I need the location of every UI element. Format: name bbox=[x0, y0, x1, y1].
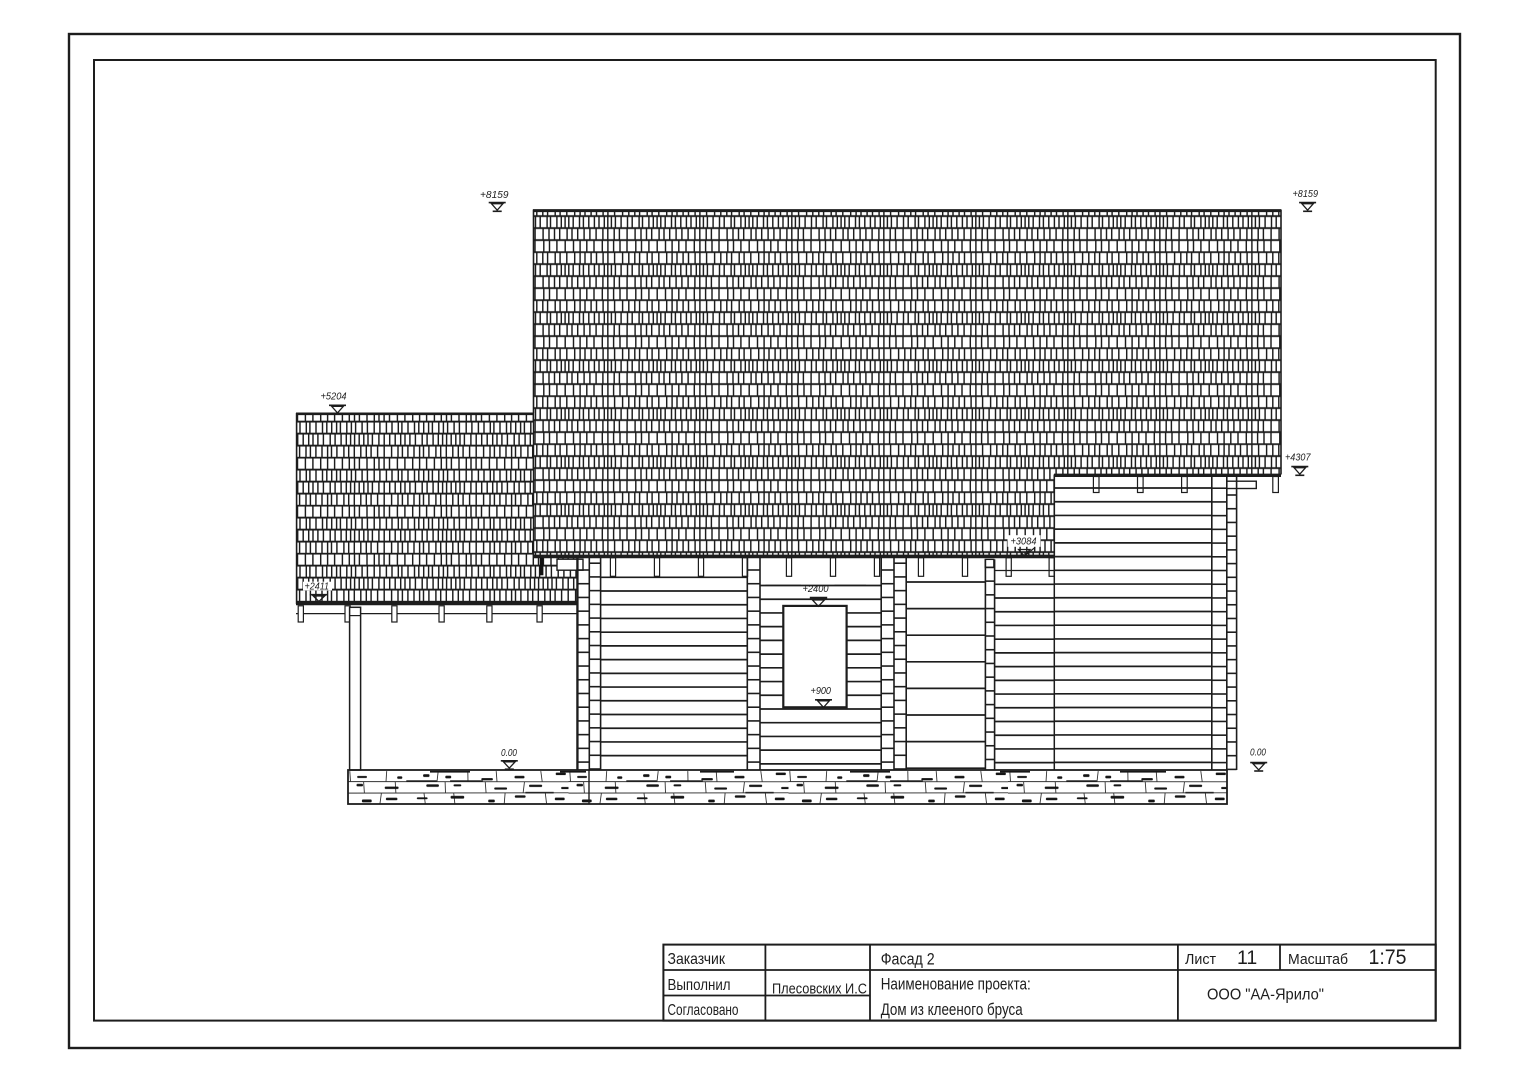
svg-text:0.00: 0.00 bbox=[501, 748, 517, 759]
svg-text:+4307: +4307 bbox=[1285, 452, 1311, 463]
svg-text:+2411: +2411 bbox=[305, 581, 330, 592]
svg-text:Согласовано: Согласовано bbox=[668, 1002, 739, 1019]
svg-text:Наименование проекта:: Наименование проекта: bbox=[881, 974, 1031, 993]
svg-text:Дом из клееного бруса: Дом из клееного бруса bbox=[881, 1000, 1023, 1019]
svg-text:+2400: +2400 bbox=[803, 584, 829, 595]
svg-text:+3084: +3084 bbox=[1011, 537, 1037, 548]
svg-text:Лист: Лист bbox=[1185, 951, 1216, 968]
svg-text:Плесовских И.С: Плесовских И.С bbox=[772, 981, 867, 998]
svg-text:ООО "АА-Ярило": ООО "АА-Ярило" bbox=[1207, 987, 1324, 1004]
svg-text:Выполнил: Выполнил bbox=[668, 977, 731, 994]
svg-text:+8159: +8159 bbox=[480, 190, 509, 201]
svg-text:+900: +900 bbox=[811, 686, 832, 697]
svg-text:Заказчик: Заказчик bbox=[668, 951, 726, 968]
svg-text:11: 11 bbox=[1237, 947, 1257, 969]
svg-text:Фасад 2: Фасад 2 bbox=[881, 949, 935, 968]
svg-text:+5204: +5204 bbox=[321, 392, 347, 403]
svg-text:Масштаб: Масштаб bbox=[1288, 951, 1348, 968]
svg-text:1:75: 1:75 bbox=[1369, 946, 1407, 969]
svg-text:0.00: 0.00 bbox=[1250, 748, 1266, 759]
svg-text:+8159: +8159 bbox=[1293, 189, 1319, 200]
